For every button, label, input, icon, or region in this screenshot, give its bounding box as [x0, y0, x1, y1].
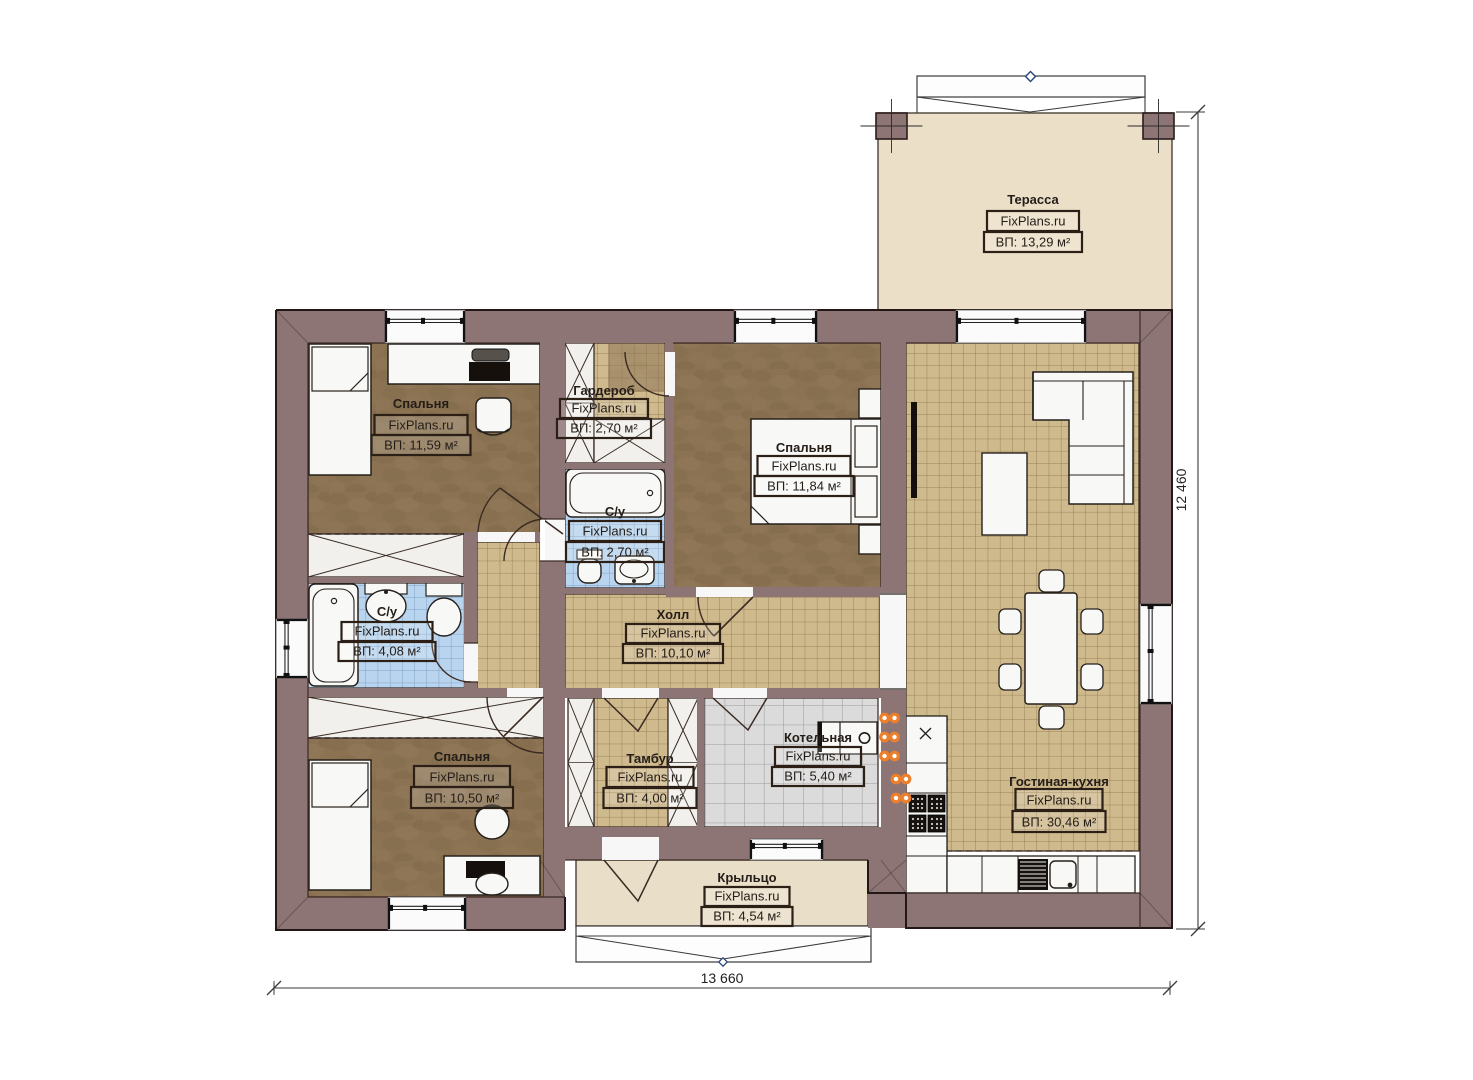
svg-text:ВП: 10,50 м²: ВП: 10,50 м² — [425, 791, 500, 806]
svg-text:Гардероб: Гардероб — [573, 383, 634, 398]
svg-text:ВП: 13,29 м²: ВП: 13,29 м² — [996, 235, 1071, 250]
svg-text:FixPlans.ru: FixPlans.ru — [582, 524, 647, 539]
svg-text:ВП: 30,46 м²: ВП: 30,46 м² — [1022, 815, 1097, 830]
svg-text:ВП: 2,70 м²: ВП: 2,70 м² — [581, 545, 649, 560]
svg-text:FixPlans.ru: FixPlans.ru — [785, 749, 850, 764]
svg-text:FixPlans.ru: FixPlans.ru — [1026, 793, 1091, 808]
svg-text:ВП: 11,84 м²: ВП: 11,84 м² — [767, 479, 841, 494]
svg-text:12 460: 12 460 — [1173, 468, 1189, 511]
svg-text:ВП: 10,10 м²: ВП: 10,10 м² — [636, 646, 711, 661]
svg-text:ВП: 4,54 м²: ВП: 4,54 м² — [713, 909, 781, 924]
svg-text:Гостиная-кухня: Гостиная-кухня — [1009, 774, 1109, 789]
svg-text:FixPlans.ru: FixPlans.ru — [571, 401, 636, 416]
svg-text:ВП: 11,59 м²: ВП: 11,59 м² — [384, 438, 458, 453]
svg-text:FixPlans.ru: FixPlans.ru — [714, 889, 779, 904]
svg-text:ВП: 4,00 м²: ВП: 4,00 м² — [616, 791, 684, 806]
svg-text:13 660: 13 660 — [701, 970, 744, 986]
svg-text:Холл: Холл — [657, 607, 690, 622]
svg-text:Спальня: Спальня — [393, 396, 449, 411]
svg-text:Крыльцо: Крыльцо — [717, 870, 776, 885]
svg-text:ВП: 4,08 м²: ВП: 4,08 м² — [353, 644, 421, 659]
svg-text:Котельная: Котельная — [784, 730, 852, 745]
svg-text:FixPlans.ru: FixPlans.ru — [354, 624, 419, 639]
svg-text:FixPlans.ru: FixPlans.ru — [617, 770, 682, 785]
svg-text:С/у: С/у — [605, 504, 626, 519]
svg-text:FixPlans.ru: FixPlans.ru — [388, 418, 453, 433]
svg-text:FixPlans.ru: FixPlans.ru — [1000, 214, 1065, 229]
svg-text:Тамбур: Тамбур — [626, 751, 673, 766]
svg-text:FixPlans.ru: FixPlans.ru — [640, 626, 705, 641]
svg-text:ВП: 5,40 м²: ВП: 5,40 м² — [784, 769, 852, 784]
svg-text:FixPlans.ru: FixPlans.ru — [429, 770, 494, 785]
svg-text:Спальня: Спальня — [776, 440, 832, 455]
svg-text:Терасса: Терасса — [1007, 192, 1059, 207]
svg-text:ВП: 2,70 м²: ВП: 2,70 м² — [570, 421, 638, 436]
svg-text:С/у: С/у — [377, 604, 398, 619]
svg-text:Спальня: Спальня — [434, 749, 490, 764]
svg-text:FixPlans.ru: FixPlans.ru — [771, 459, 836, 474]
